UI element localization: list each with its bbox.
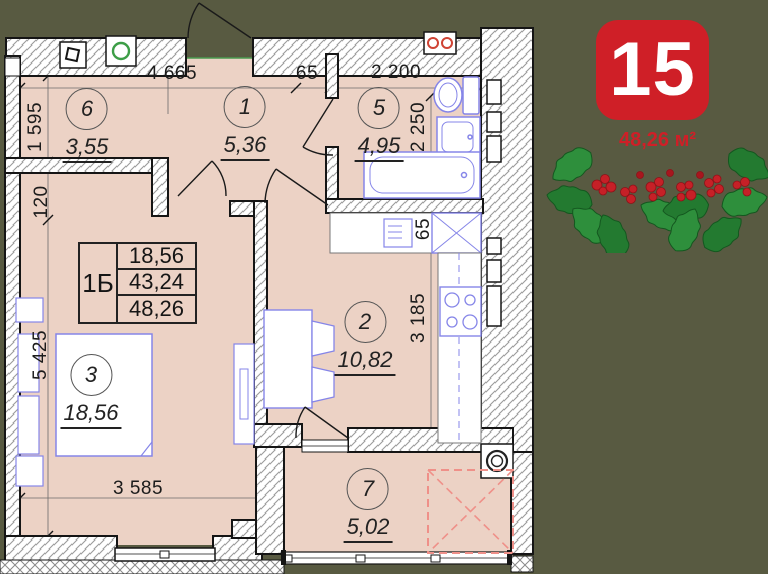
vent-circle-icon (106, 36, 136, 66)
stove-icon (440, 287, 481, 336)
apartment-badge-block: 15 48,26 м² (545, 20, 768, 260)
chair-icon (312, 321, 334, 356)
entrance-door (188, 3, 251, 38)
dining-table-icon (264, 310, 312, 408)
toilet-icon (463, 77, 479, 114)
boiler-icon (481, 444, 513, 478)
floor-plan: 4 665 65 2 200 1 595 120 5 425 2 250 65 … (0, 0, 540, 574)
screenshot-stage: 4 665 65 2 200 1 595 120 5 425 2 250 65 … (0, 0, 768, 574)
floor-plan-drawing (0, 0, 540, 574)
chair-icon (312, 367, 334, 402)
electric-box-icon (60, 42, 86, 68)
apartment-total-area: 48,26 м² (545, 129, 768, 152)
apartment-number: 15 (609, 32, 696, 108)
apartment-number-badge[interactable]: 15 (596, 20, 709, 120)
bed-icon (56, 334, 152, 456)
